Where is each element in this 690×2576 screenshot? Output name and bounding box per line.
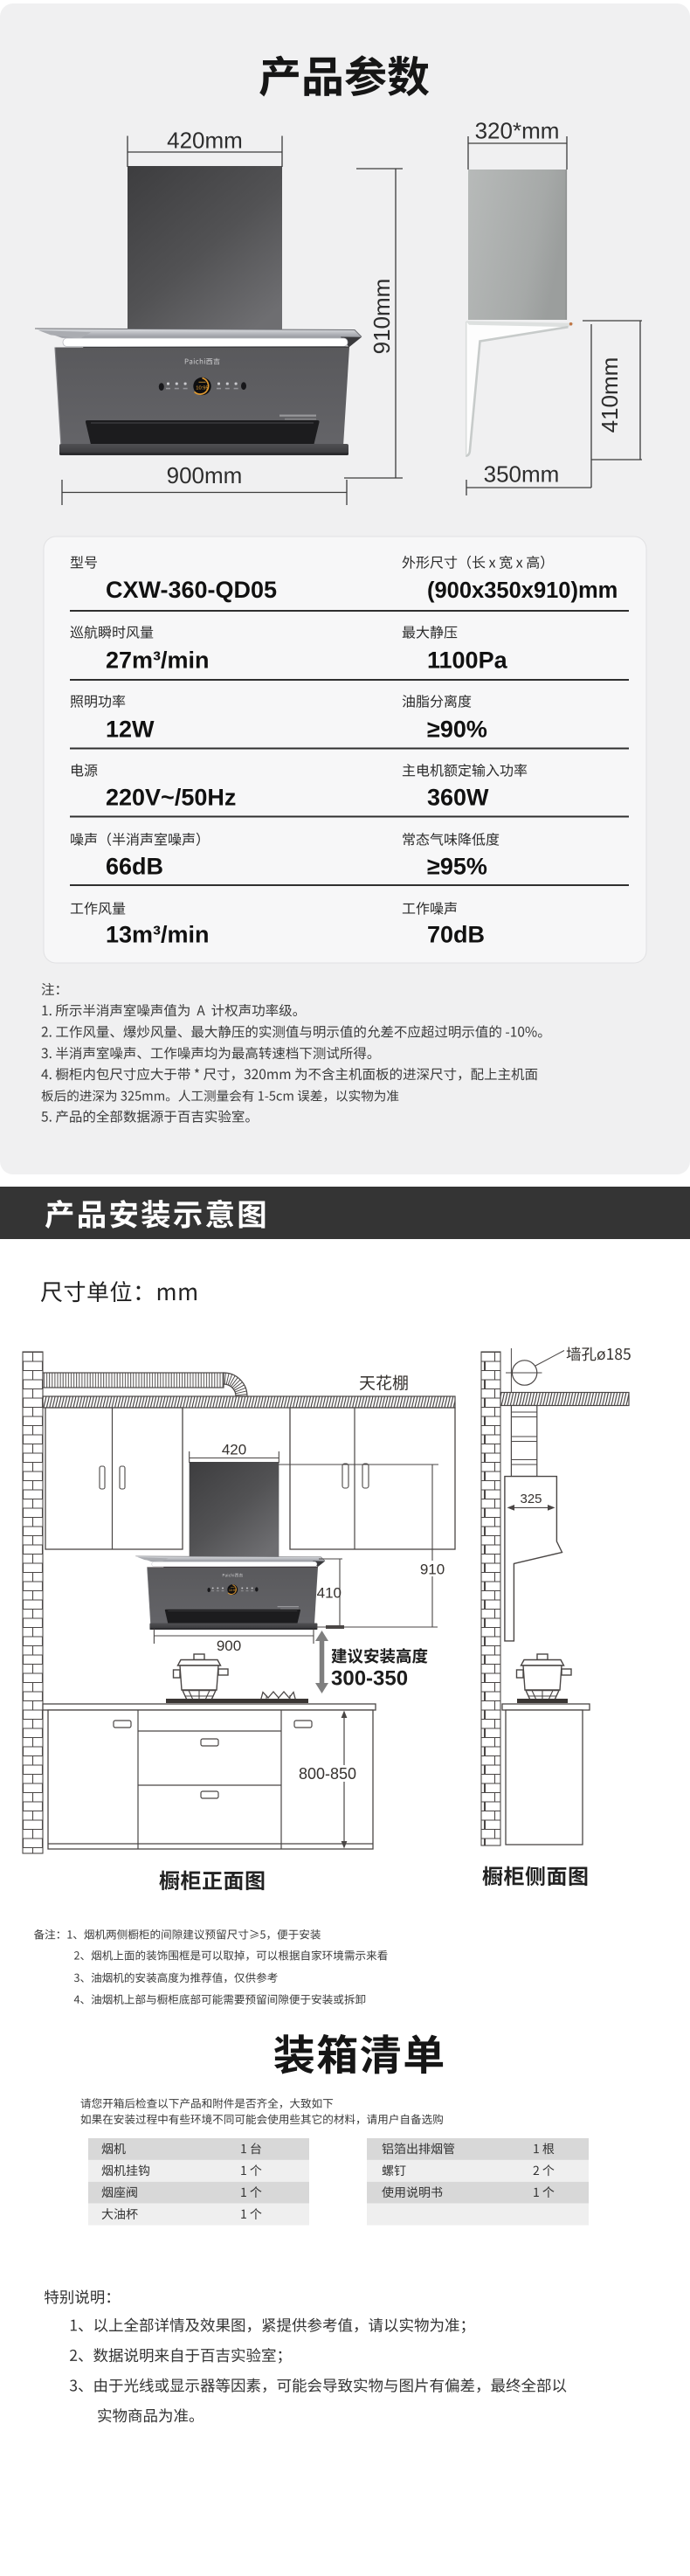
svg-text:12W: 12W — [106, 717, 155, 743]
svg-text:410mm: 410mm — [597, 357, 623, 433]
svg-text:420: 420 — [222, 1442, 246, 1458]
svg-text:910mm: 910mm — [369, 279, 395, 355]
svg-text:66dB: 66dB — [106, 854, 163, 880]
svg-text:900mm: 900mm — [167, 462, 243, 488]
svg-text:27m³/min: 27m³/min — [106, 647, 210, 674]
svg-text:220V~/50Hz: 220V~/50Hz — [106, 785, 236, 811]
svg-text:CXW-360-QD05: CXW-360-QD05 — [106, 577, 277, 603]
svg-text:(900x350x910)mm: (900x350x910)mm — [427, 578, 618, 603]
svg-text:≥95%: ≥95% — [427, 854, 487, 880]
svg-text:350mm: 350mm — [484, 461, 560, 488]
svg-text:900: 900 — [217, 1638, 241, 1654]
svg-text:800-850: 800-850 — [299, 1765, 356, 1783]
svg-text:325: 325 — [520, 1492, 542, 1506]
svg-text:70dB: 70dB — [427, 922, 485, 948]
svg-text:≥90%: ≥90% — [427, 717, 487, 743]
svg-text:13m³/min: 13m³/min — [106, 922, 210, 948]
svg-text:910: 910 — [420, 1562, 445, 1578]
svg-text:300-350: 300-350 — [331, 1667, 408, 1691]
svg-text:320*mm: 320*mm — [475, 118, 560, 144]
svg-text:360W: 360W — [427, 785, 489, 811]
svg-text:1100Pa: 1100Pa — [427, 647, 508, 674]
svg-text:410: 410 — [317, 1585, 342, 1602]
svg-text:420mm: 420mm — [167, 128, 243, 154]
